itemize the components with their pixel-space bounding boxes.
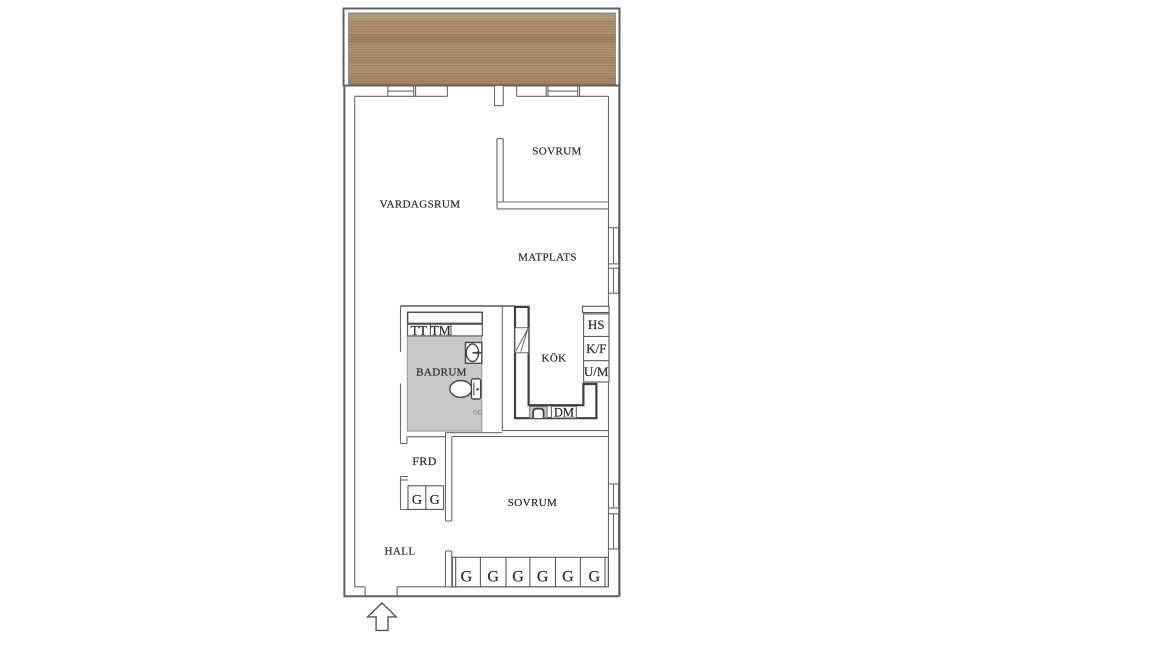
svg-text:SOVRUM: SOVRUM (532, 145, 581, 157)
svg-text:SOVRUM: SOVRUM (508, 497, 557, 509)
svg-text:G: G (487, 569, 499, 586)
svg-text:G: G (589, 569, 601, 586)
svg-text:BADRUM: BADRUM (416, 367, 467, 379)
svg-text:G: G (512, 569, 524, 586)
svg-text:VARDAGSRUM: VARDAGSRUM (380, 199, 461, 211)
svg-text:G: G (430, 493, 440, 508)
svg-text:G: G (537, 569, 549, 586)
svg-text:HALL: HALL (385, 545, 416, 557)
svg-text:KÖK: KÖK (541, 353, 566, 365)
svg-text:MATPLATS: MATPLATS (518, 251, 577, 263)
svg-text:G: G (562, 569, 574, 586)
svg-text:DM: DM (554, 406, 574, 420)
svg-text:G: G (412, 493, 422, 508)
svg-text:U/M: U/M (584, 364, 609, 379)
svg-text:FRD: FRD (412, 454, 437, 468)
svg-text:G: G (461, 569, 473, 586)
svg-text:TM: TM (430, 323, 450, 338)
svg-text:K/F: K/F (586, 341, 606, 356)
svg-text:HS: HS (588, 317, 605, 332)
svg-text:TT: TT (411, 323, 428, 338)
